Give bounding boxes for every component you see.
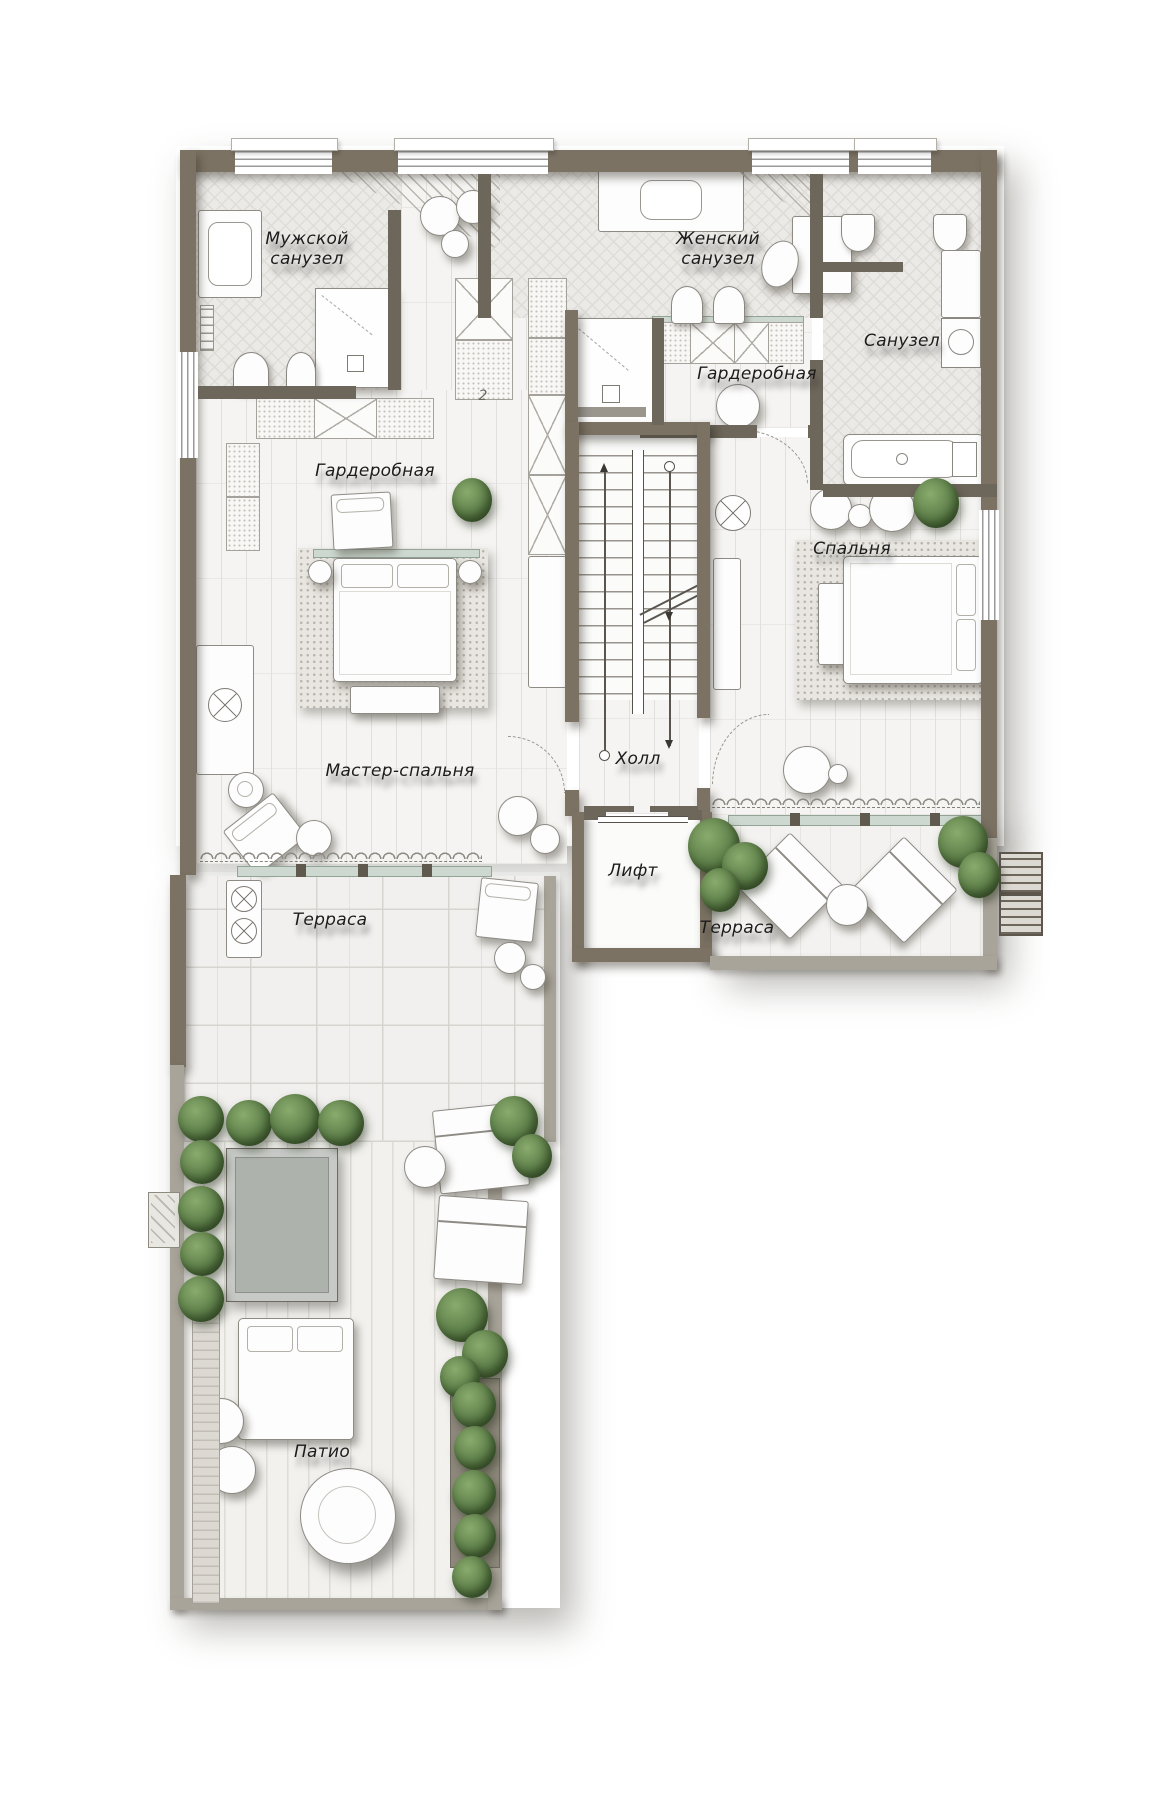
stair-arrow-down-mid bbox=[665, 612, 673, 621]
room-label-master-bedroom: Мастер-спальня bbox=[325, 761, 474, 781]
pillow bbox=[956, 564, 976, 616]
partition-wall bbox=[810, 172, 823, 318]
armchair bbox=[331, 491, 394, 550]
plant bbox=[958, 852, 1000, 898]
armchair bbox=[783, 746, 831, 794]
bathtub bbox=[843, 434, 985, 486]
pillow bbox=[397, 564, 449, 588]
round-table bbox=[404, 1146, 446, 1188]
room-label-terrace-left: Терраса bbox=[293, 910, 368, 930]
elevator-door bbox=[598, 816, 688, 823]
threshold bbox=[584, 806, 634, 812]
stair-wall bbox=[565, 422, 579, 722]
pouf bbox=[520, 964, 546, 990]
door-post bbox=[422, 864, 432, 877]
garden-wall bbox=[544, 876, 556, 1142]
room-label-bedroom: Спальня bbox=[813, 539, 891, 559]
plant bbox=[454, 1426, 496, 1470]
wardrobe-cabinet bbox=[314, 398, 378, 439]
fan-icon bbox=[231, 918, 257, 944]
armchair-back bbox=[484, 883, 531, 902]
partition-wall bbox=[823, 484, 997, 497]
plant bbox=[452, 1470, 496, 1516]
wall bbox=[170, 875, 186, 1067]
door-post bbox=[358, 864, 368, 877]
stair-wall bbox=[565, 310, 578, 425]
window-sill bbox=[231, 138, 338, 151]
room-label-womens-bathroom: Женский санузел bbox=[676, 229, 760, 269]
plant bbox=[452, 478, 492, 522]
side-table-top bbox=[237, 781, 253, 797]
toilet bbox=[671, 286, 703, 324]
wall bbox=[180, 150, 196, 875]
partition-wall bbox=[808, 425, 823, 438]
bed bbox=[843, 556, 983, 684]
wardrobe-cabinet bbox=[376, 398, 434, 439]
room-label-patio: Патио bbox=[294, 1442, 350, 1462]
pool-water bbox=[235, 1157, 329, 1293]
bidet bbox=[713, 286, 745, 324]
wardrobe-cabinet bbox=[734, 322, 770, 364]
curtain-line bbox=[200, 850, 482, 859]
shower bbox=[315, 288, 395, 388]
stair-arrow-line-up bbox=[604, 472, 606, 754]
wardrobe-cabinet bbox=[768, 322, 804, 364]
side-table bbox=[828, 764, 848, 784]
room-label-terrace-right: Терраса bbox=[700, 918, 775, 938]
lounge-chair bbox=[433, 1195, 529, 1285]
fan-coil-unit bbox=[715, 495, 751, 531]
plant bbox=[178, 1186, 224, 1232]
pouf bbox=[530, 824, 560, 854]
window-sill bbox=[854, 138, 937, 151]
stair-wall bbox=[565, 422, 710, 435]
plant bbox=[226, 1100, 272, 1146]
parapet bbox=[710, 956, 997, 970]
partition-wall bbox=[388, 210, 401, 390]
window bbox=[858, 148, 931, 174]
wardrobe-cabinet bbox=[528, 278, 567, 338]
plant bbox=[700, 868, 740, 912]
door-post bbox=[860, 813, 870, 826]
plant bbox=[180, 1232, 224, 1276]
shower-drain bbox=[347, 355, 364, 372]
floor-elevator bbox=[584, 822, 700, 948]
fan-icon bbox=[231, 886, 257, 912]
threshold bbox=[650, 806, 698, 812]
window bbox=[752, 148, 849, 174]
bathtub-drain bbox=[896, 453, 908, 465]
stair-arrow-up bbox=[600, 463, 608, 472]
bed-bench bbox=[350, 686, 440, 714]
stair-arrow-down bbox=[665, 740, 673, 749]
plant bbox=[318, 1100, 364, 1146]
window bbox=[979, 510, 999, 620]
pillow bbox=[341, 564, 393, 588]
bidet bbox=[933, 214, 967, 252]
plant bbox=[452, 1382, 496, 1428]
round-daybed-inner bbox=[318, 1486, 376, 1544]
partition-wall bbox=[478, 172, 491, 318]
plant bbox=[178, 1096, 224, 1142]
partition-wall bbox=[196, 386, 356, 399]
plant bbox=[452, 1556, 492, 1598]
bed bbox=[333, 558, 457, 682]
tv-console bbox=[713, 558, 741, 690]
shower bbox=[568, 318, 654, 424]
stool bbox=[441, 230, 469, 258]
glass-console bbox=[313, 549, 480, 558]
plant bbox=[454, 1514, 496, 1558]
room-label-wardrobe-left: Гардеробная bbox=[315, 461, 435, 481]
round-daybed bbox=[300, 1468, 396, 1564]
niche-hatch bbox=[151, 1195, 175, 1243]
window-sill bbox=[394, 138, 554, 151]
washer-drum bbox=[948, 329, 974, 355]
stair-arrow-start bbox=[599, 750, 610, 761]
partition-wall bbox=[823, 262, 903, 272]
shower-drain bbox=[602, 385, 620, 403]
plant bbox=[913, 478, 959, 528]
elevator-wall bbox=[572, 812, 584, 960]
plant bbox=[512, 1134, 552, 1178]
threshold-line bbox=[200, 861, 482, 862]
nightstand bbox=[458, 560, 482, 584]
nightstand bbox=[308, 560, 332, 584]
armchair bbox=[475, 877, 539, 943]
facade-ladder bbox=[999, 852, 1043, 894]
round-table bbox=[826, 884, 868, 926]
towel-ladder bbox=[200, 305, 214, 351]
daybed bbox=[238, 1318, 354, 1440]
stair-stringer bbox=[632, 450, 644, 714]
room-label-elevator: Лифт bbox=[608, 861, 657, 881]
window-sill bbox=[748, 138, 855, 151]
pouf bbox=[716, 384, 760, 428]
armchair-back bbox=[336, 497, 385, 513]
fan-coil-unit bbox=[208, 688, 242, 722]
threshold-line bbox=[712, 807, 980, 808]
shower-bench bbox=[574, 407, 646, 417]
plant bbox=[178, 1276, 224, 1322]
blanket bbox=[339, 591, 451, 675]
curtain-line bbox=[712, 796, 980, 805]
floor-mark: 2 bbox=[479, 388, 488, 404]
room-label-mens-bathroom: Мужской санузел bbox=[265, 229, 348, 269]
room-label-bathroom: Санузел bbox=[864, 331, 940, 351]
washing-machine bbox=[941, 318, 981, 368]
wardrobe-cabinet bbox=[528, 475, 567, 555]
stair-wall bbox=[697, 422, 710, 718]
pillow bbox=[956, 619, 976, 671]
floor-plan: Мужской санузел Женский санузел Санузел … bbox=[0, 0, 1170, 1810]
wardrobe-cabinet bbox=[690, 322, 736, 364]
plant bbox=[180, 1140, 224, 1184]
pillow bbox=[247, 1326, 293, 1352]
door-post bbox=[296, 864, 306, 877]
facade-ladder bbox=[999, 894, 1043, 936]
partition-wall bbox=[652, 318, 664, 425]
pillow bbox=[297, 1326, 343, 1352]
pool bbox=[226, 1148, 338, 1302]
stair-arrow-start-2 bbox=[664, 461, 675, 472]
window bbox=[178, 352, 198, 458]
toilet bbox=[841, 214, 875, 252]
cabinet bbox=[941, 250, 981, 318]
bathtub-faucet bbox=[952, 442, 977, 477]
wardrobe-cabinet bbox=[528, 556, 567, 688]
window bbox=[235, 148, 332, 174]
sink bbox=[208, 222, 252, 286]
wardrobe-cabinet bbox=[256, 398, 316, 439]
room-label-wardrobe-right: Гардеробная bbox=[697, 364, 817, 384]
door-post bbox=[790, 813, 800, 826]
plant bbox=[270, 1094, 320, 1144]
garden-niche bbox=[148, 1192, 180, 1248]
door-post bbox=[930, 813, 940, 826]
blanket bbox=[850, 563, 952, 675]
room-label-hall: Холл bbox=[616, 749, 661, 769]
window bbox=[398, 148, 548, 174]
wardrobe-cabinet bbox=[226, 497, 260, 551]
garden-wall bbox=[170, 1065, 184, 1610]
bed-bench bbox=[818, 583, 846, 665]
elevator-wall bbox=[572, 948, 712, 962]
deck-steps bbox=[192, 1312, 220, 1604]
wardrobe-cabinet bbox=[226, 443, 260, 497]
sink bbox=[640, 180, 702, 220]
